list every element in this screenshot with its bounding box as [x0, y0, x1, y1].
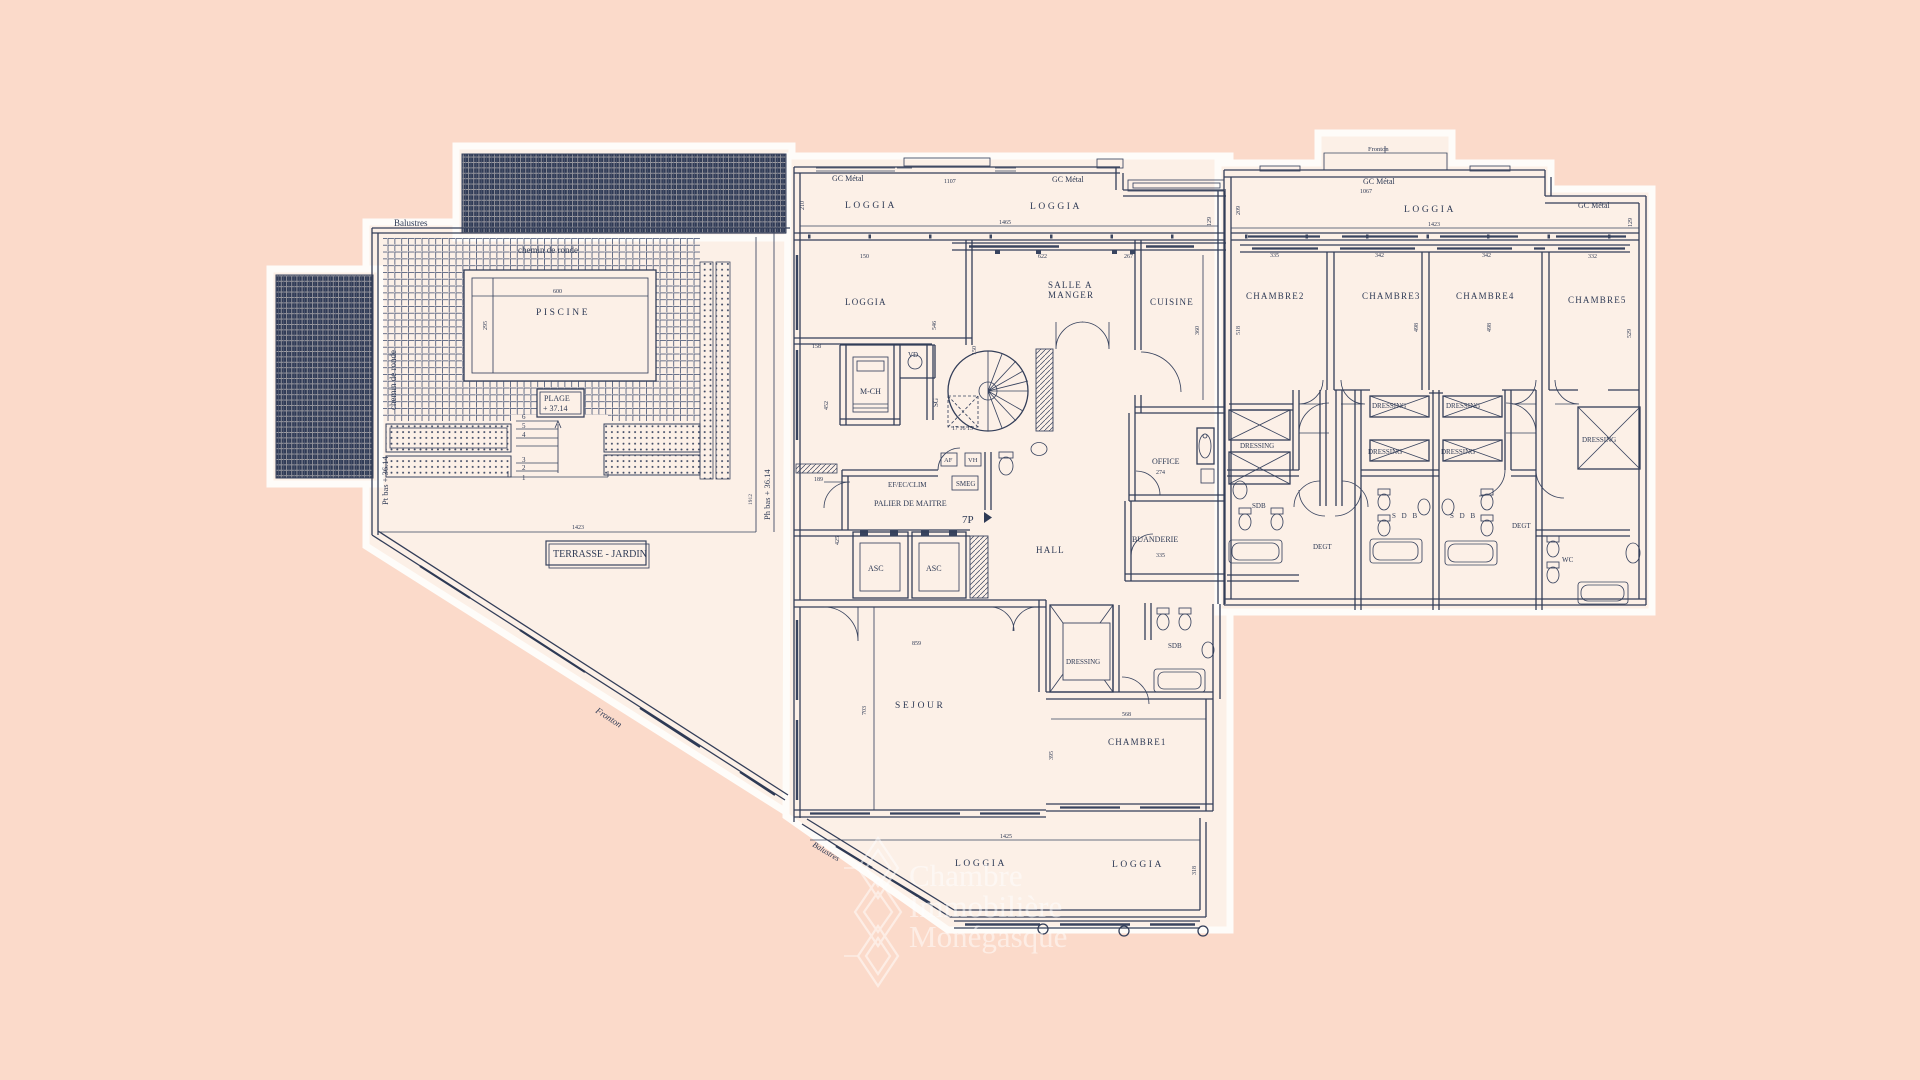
svg-text:SDB: SDB: [1168, 642, 1182, 650]
svg-text:1425: 1425: [1000, 834, 1012, 840]
svg-text:VD: VD: [908, 351, 918, 359]
svg-text:DRESSING: DRESSING: [1582, 436, 1616, 444]
svg-text:GC Métal: GC Métal: [1052, 175, 1085, 184]
svg-text:S D B: S D B: [1392, 512, 1419, 520]
svg-text:1465: 1465: [999, 220, 1011, 226]
svg-text:BUANDERIE: BUANDERIE: [1132, 535, 1178, 544]
svg-text:332: 332: [1588, 254, 1597, 260]
svg-text:DRESSING: DRESSING: [1441, 448, 1475, 456]
svg-text:S D B: S D B: [1450, 512, 1477, 520]
svg-text:VH: VH: [968, 457, 978, 464]
svg-text:chemin de ronde: chemin de ronde: [518, 245, 578, 255]
svg-text:CHAMBRE4: CHAMBRE4: [1456, 291, 1515, 301]
svg-text:158: 158: [812, 344, 821, 350]
svg-text:395: 395: [1049, 751, 1055, 760]
svg-text:WC: WC: [1562, 556, 1574, 564]
svg-text:1: 1: [522, 474, 526, 482]
svg-text:Balustres: Balustres: [394, 218, 428, 228]
svg-text:M-CH: M-CH: [860, 387, 881, 396]
svg-text:342: 342: [1482, 253, 1491, 259]
svg-text:ASC: ASC: [868, 564, 884, 573]
svg-text:ASC: ASC: [926, 564, 942, 573]
svg-text:PALIER DE MAITRE: PALIER DE MAITRE: [874, 499, 947, 508]
svg-text:GC Métal: GC Métal: [832, 174, 865, 183]
svg-text:1107: 1107: [944, 179, 956, 185]
svg-text:SMEG: SMEG: [956, 480, 975, 488]
svg-text:335: 335: [1270, 253, 1279, 259]
svg-text:EF/EC/CLIM: EF/EC/CLIM: [888, 481, 927, 489]
svg-text:chemin de ronde: chemin de ronde: [388, 350, 398, 410]
svg-text:425: 425: [835, 536, 841, 545]
svg-text:SG: SG: [932, 398, 940, 407]
svg-text:189: 189: [814, 477, 823, 483]
svg-text:TERRASSE - JARDIN: TERRASSE - JARDIN: [553, 549, 647, 560]
svg-text:CUISINE: CUISINE: [1150, 297, 1194, 307]
svg-text:859: 859: [912, 641, 921, 647]
svg-text:PLAGE: PLAGE: [544, 394, 570, 403]
svg-text:129: 129: [1628, 218, 1634, 227]
svg-text:DRESSING: DRESSING: [1066, 658, 1100, 666]
svg-text:452: 452: [824, 401, 830, 410]
svg-text:1423: 1423: [572, 525, 584, 531]
svg-text:703: 703: [862, 706, 868, 715]
svg-text:546: 546: [932, 321, 938, 330]
svg-text:295: 295: [483, 321, 489, 330]
svg-text:1423: 1423: [1428, 222, 1440, 228]
svg-text:2: 2: [522, 464, 526, 472]
svg-text:CHAMBRE1: CHAMBRE1: [1108, 737, 1167, 747]
svg-text:DRESSING: DRESSING: [1372, 402, 1406, 410]
svg-text:Monégasque: Monégasque: [909, 919, 1067, 954]
svg-text:342: 342: [1375, 253, 1384, 259]
svg-text:DRESSING: DRESSING: [1368, 448, 1402, 456]
svg-text:PISCINE: PISCINE: [536, 308, 590, 318]
svg-text:GC Métal: GC Métal: [1578, 201, 1611, 210]
svg-text:DRESSING: DRESSING: [1240, 442, 1274, 450]
svg-text:LOGGIA: LOGGIA: [1112, 860, 1164, 870]
svg-text:210: 210: [800, 201, 806, 210]
svg-text:150: 150: [860, 254, 869, 260]
svg-text:CHAMBRE5: CHAMBRE5: [1568, 295, 1627, 305]
svg-text:600: 600: [553, 289, 562, 295]
svg-text:Ph bas + 36.14: Ph bas + 36.14: [762, 469, 772, 520]
svg-text:7P: 7P: [962, 514, 974, 526]
svg-text:HALL: HALL: [1036, 545, 1065, 555]
svg-text:518: 518: [1236, 326, 1242, 335]
svg-text:SEJOUR: SEJOUR: [895, 701, 945, 711]
svg-text:GC Métal: GC Métal: [1363, 177, 1396, 186]
svg-text:+ 37.14: + 37.14: [543, 404, 568, 413]
svg-text:LOGGIA: LOGGIA: [845, 297, 887, 307]
svg-text:6: 6: [522, 413, 526, 421]
svg-text:MANGER: MANGER: [1048, 290, 1094, 300]
svg-text:LOGGIA: LOGGIA: [845, 201, 897, 211]
svg-text:Fronton: Fronton: [1368, 146, 1389, 153]
svg-text:318: 318: [1192, 866, 1198, 875]
svg-text:CHAMBRE2: CHAMBRE2: [1246, 291, 1305, 301]
svg-text:622: 622: [1038, 254, 1047, 260]
svg-text:OFFICE: OFFICE: [1152, 457, 1180, 466]
svg-text:129: 129: [1207, 217, 1213, 226]
svg-text:Pt bas + 36.14: Pt bas + 36.14: [380, 456, 390, 505]
svg-text:DRESSING: DRESSING: [1446, 402, 1480, 410]
svg-text:Chambre: Chambre: [909, 858, 1023, 893]
svg-text:267: 267: [1124, 254, 1133, 260]
svg-text:3: 3: [522, 456, 526, 464]
svg-text:AF: AF: [944, 457, 953, 464]
svg-text:5: 5: [522, 422, 526, 430]
svg-text:498: 498: [1414, 323, 1420, 332]
svg-text:LOGGIA: LOGGIA: [1030, 202, 1082, 212]
svg-text:LOGGIA: LOGGIA: [1404, 205, 1456, 215]
svg-text:17 16 15: 17 16 15: [952, 426, 973, 432]
svg-text:1912: 1912: [748, 494, 754, 505]
svg-text:CHAMBRE3: CHAMBRE3: [1362, 291, 1421, 301]
svg-text:498: 498: [1487, 323, 1493, 332]
svg-text:SDB: SDB: [1252, 502, 1266, 510]
svg-text:274: 274: [1156, 470, 1165, 476]
svg-text:360: 360: [1195, 326, 1201, 335]
svg-text:529: 529: [1627, 329, 1633, 338]
svg-text:4: 4: [522, 431, 526, 439]
svg-text:209: 209: [1236, 206, 1242, 215]
svg-text:DEGT: DEGT: [1313, 543, 1332, 551]
svg-text:568: 568: [1122, 712, 1131, 718]
svg-text:DEGT: DEGT: [1512, 522, 1531, 530]
svg-text:SALLE A: SALLE A: [1048, 280, 1093, 290]
svg-text:335: 335: [1156, 553, 1165, 559]
svg-text:1067: 1067: [1360, 189, 1372, 195]
